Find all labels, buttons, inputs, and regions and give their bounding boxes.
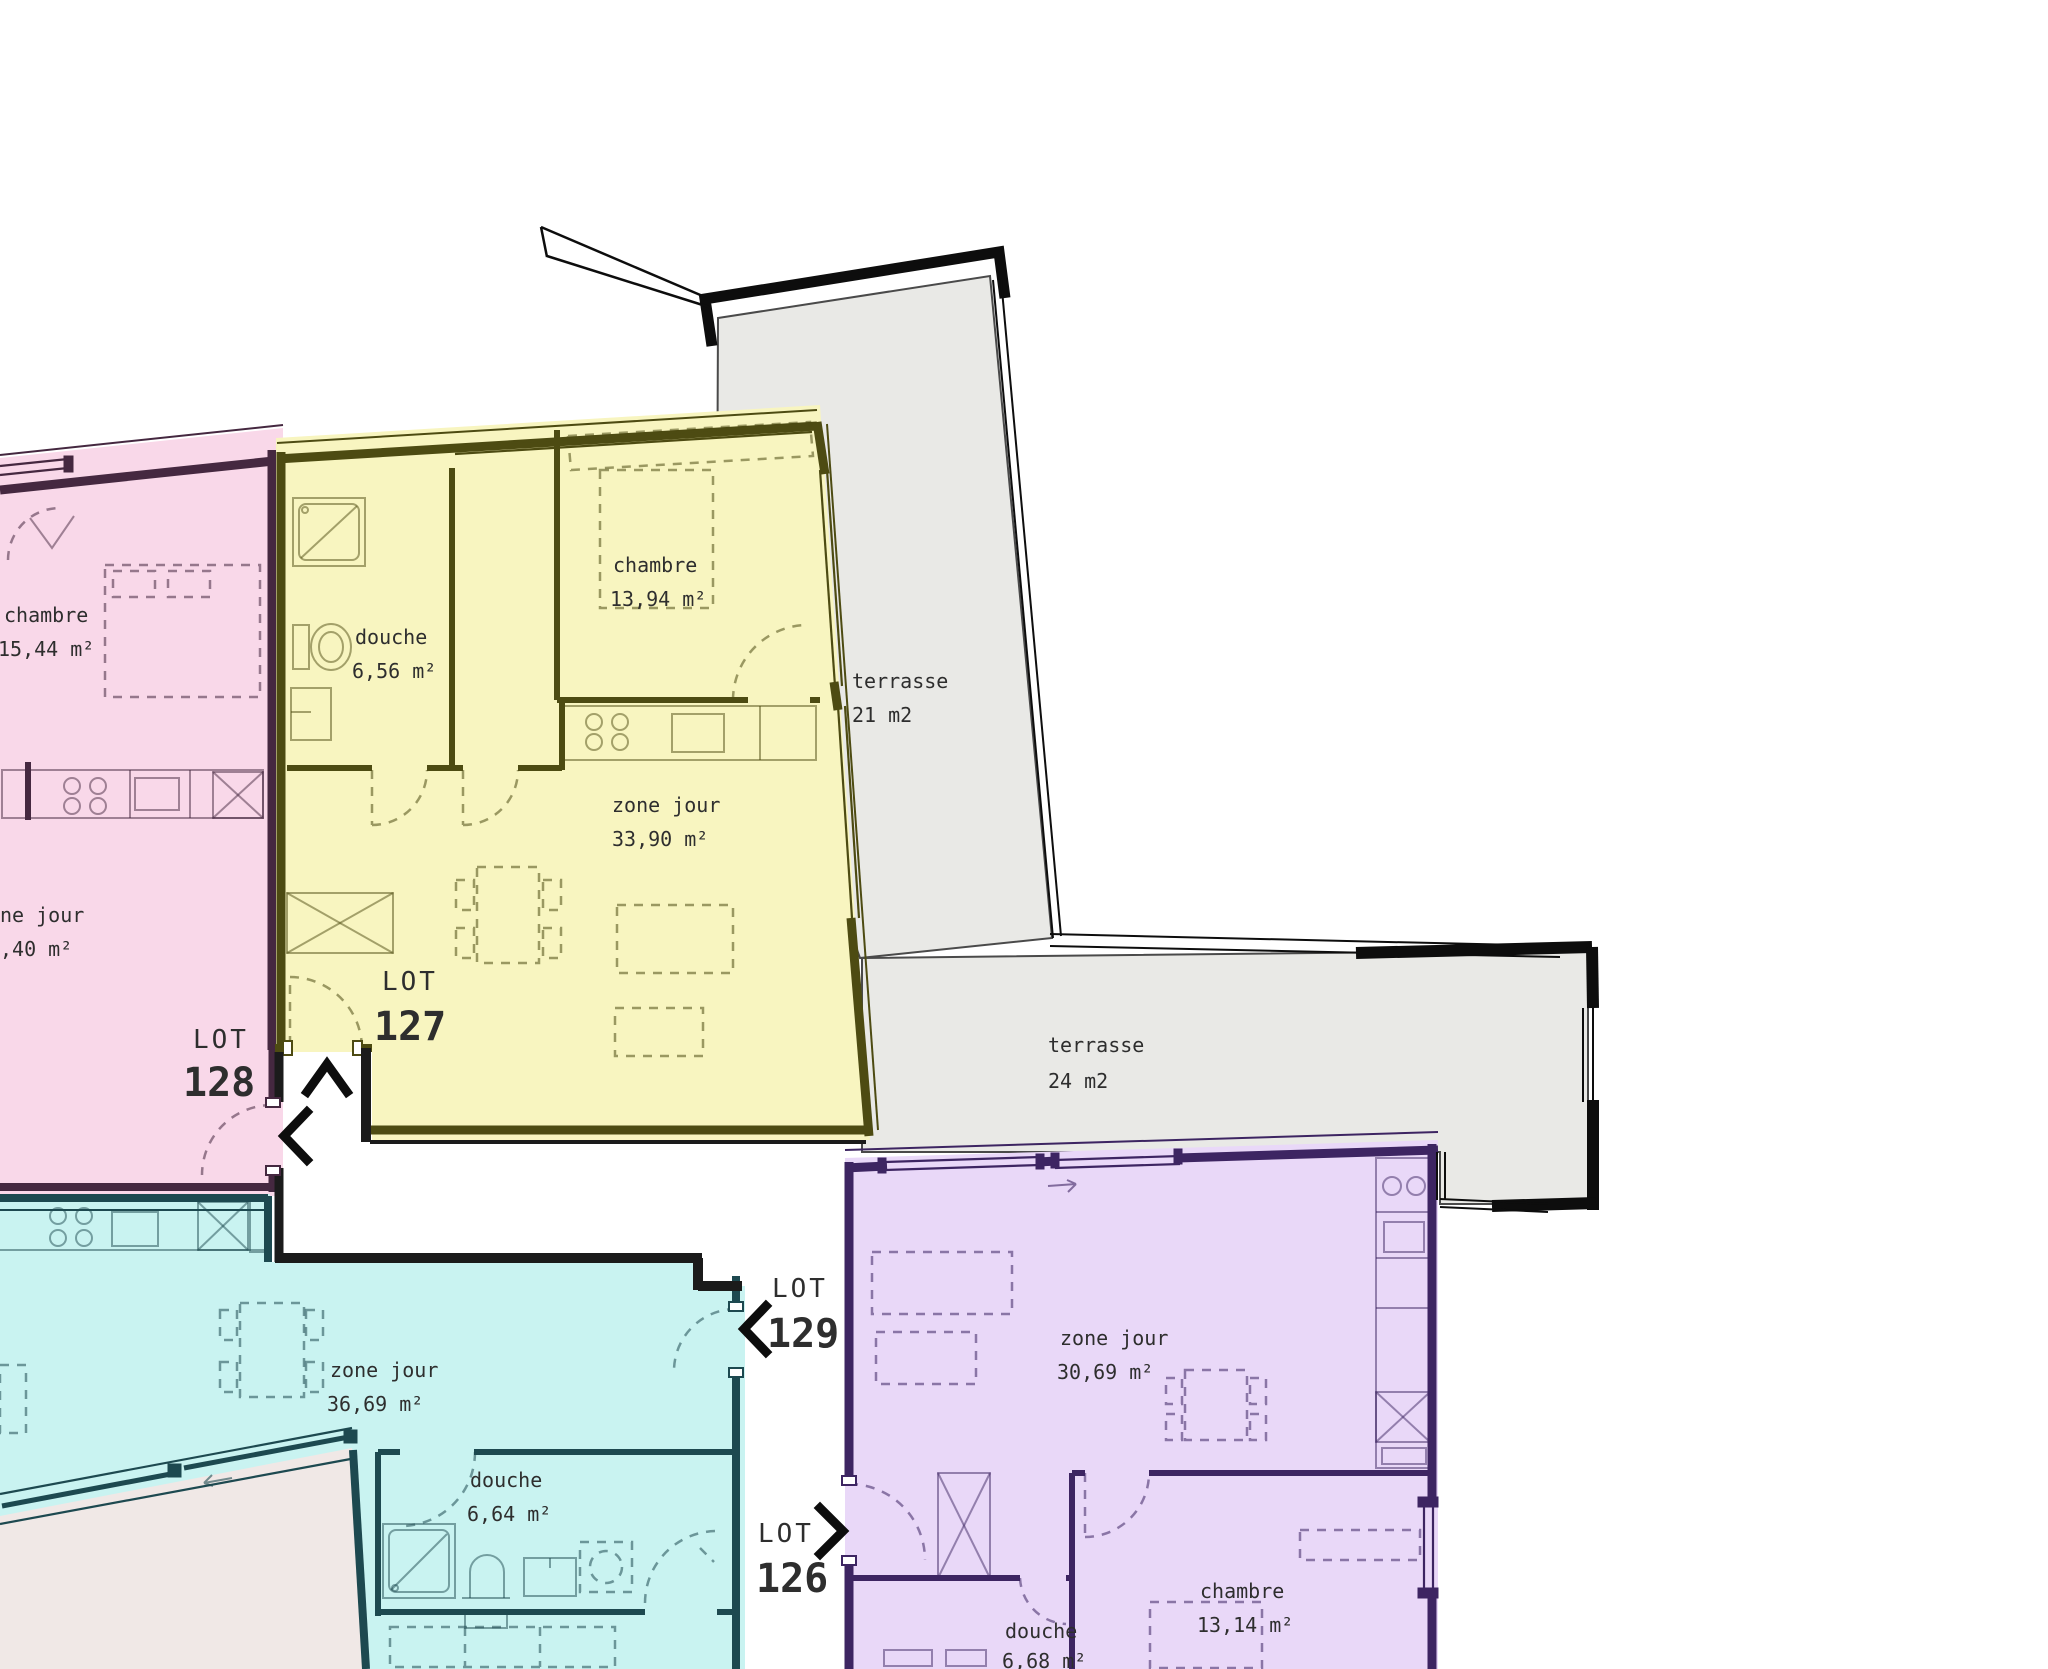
lot-number: 127 [374,1004,446,1050]
room-area: 15,44 m² [0,637,94,661]
chevron-left-icon [284,1112,307,1160]
floor-plan-svg: chambre 15,44 m² ne jour ,40 m² LOT 128 … [0,0,2048,1669]
room-label: zone jour [1060,1326,1168,1350]
lot-number: 128 [183,1060,255,1106]
apartment-lot-126 [842,1132,1438,1669]
lot-label: LOT [382,967,438,997]
room-area: 6,64 m² [467,1502,551,1526]
room-area: 30,69 m² [1057,1360,1153,1384]
room-area: 6,56 m² [352,659,436,683]
terrace-area: 24 m2 [1048,1069,1108,1093]
terrace-area: 21 m2 [852,703,912,727]
room-label: zone jour [330,1358,438,1382]
room-label: douche [355,625,427,649]
room-area: 6,68 m² [1002,1649,1086,1669]
apartment-lot-127 [275,405,878,1140]
lot-label: LOT [758,1519,814,1549]
chevron-up-icon [307,1064,347,1092]
room-label: douche [1005,1619,1077,1643]
apartment-lot-129 [0,1194,745,1669]
chevron-left-icon [744,1306,766,1352]
room-area: 33,90 m² [612,827,708,851]
room-area: 36,69 m² [327,1392,423,1416]
room-label: chambre [4,603,88,627]
lot-label: LOT [772,1274,828,1304]
room-area: ,40 m² [0,937,72,961]
room-label: chambre [613,553,697,577]
lot-number: 126 [756,1556,828,1602]
lot-label: LOT [193,1025,249,1055]
room-area: 13,14 m² [1197,1613,1293,1637]
room-label: chambre [1200,1579,1284,1603]
chevron-right-icon [820,1508,843,1554]
room-area: 13,94 m² [610,587,706,611]
floor-plan-canvas: chambre 15,44 m² ne jour ,40 m² LOT 128 … [0,0,2048,1669]
room-label: zone jour [612,793,720,817]
room-label: ne jour [0,903,84,927]
room-label: douche [470,1468,542,1492]
terrace-label: terrasse [1048,1033,1144,1057]
lot-number: 129 [767,1311,839,1357]
terrace-label: terrasse [852,669,948,693]
